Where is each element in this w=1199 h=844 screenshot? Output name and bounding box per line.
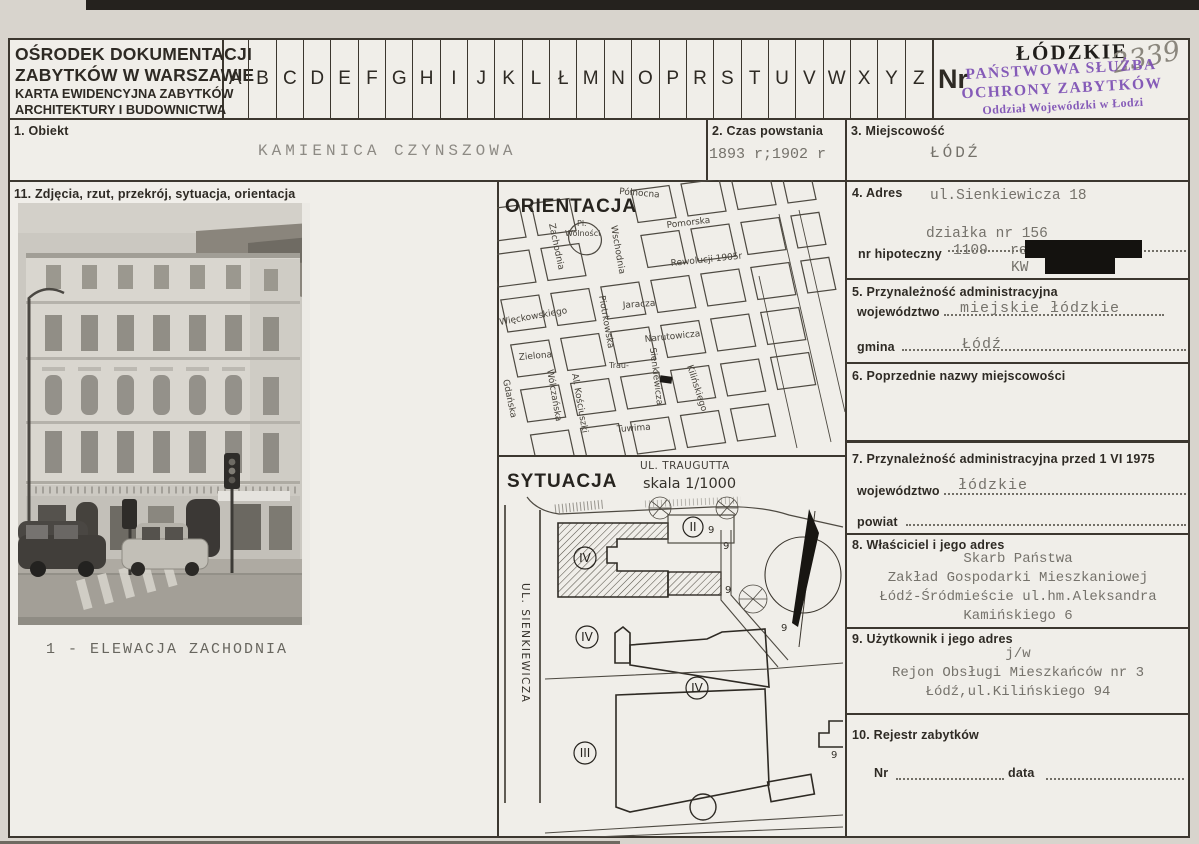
wlasciciel-line: Łódź-Śródmieście ul.hm.Aleksandra <box>848 588 1188 607</box>
alphabet-cell: P <box>659 40 686 118</box>
alphabet-cell: B <box>248 40 275 118</box>
adres-street: ul.Sienkiewicza 18 <box>930 188 1087 204</box>
uzytkownik-line: Rejon Obsługi Mieszkańców nr 3 <box>848 664 1188 683</box>
svg-text:IV: IV <box>579 551 592 565</box>
hipoteczny-value: 1109 <box>953 243 988 259</box>
svg-text:Rewolucji 1905r: Rewolucji 1905r <box>670 251 743 268</box>
divider <box>845 533 1190 535</box>
street-left-label: UL. SIENKIEWICZA <box>519 583 531 703</box>
scan-edge-top <box>86 0 1199 10</box>
field-label-przynaleznosc-1975: 7. Przynależność administracyjna przed 1… <box>852 452 1155 466</box>
divider <box>845 440 1190 443</box>
svg-text:Pl.: Pl. <box>577 219 587 228</box>
svg-text:Zielona: Zielona <box>518 350 552 363</box>
orientation-title: ORIENTACJA <box>505 196 637 217</box>
dotted-line <box>896 778 1004 780</box>
wojewodztwo-1975-value: łódzkie <box>958 477 1028 494</box>
wlasciciel-line: Skarb Państwa <box>848 550 1188 569</box>
institution-header: OŚRODEK DOKUMENTACJIZABYTKÓW W WARSZAWIE… <box>15 44 221 117</box>
alphabet-cell: A <box>222 40 248 118</box>
situation-plan: UL. SIENKIEWICZA SYTUACJA UL. TRAUGUTTA … <box>497 455 845 838</box>
street-top-label: UL. TRAUGUTTA <box>640 460 730 472</box>
alphabet-cell: S <box>713 40 740 118</box>
field-label-adres: 4. Adres <box>852 186 902 200</box>
wlasciciel-line: Kamińskiego 6 <box>848 607 1188 626</box>
redaction-bar <box>1045 258 1115 274</box>
building-photograph <box>18 203 310 625</box>
orientation-map: ORIENTACJA Północna Pomorska Rewolucji 1… <box>497 180 845 455</box>
institution-line: OŚRODEK DOKUMENTACJI <box>15 44 221 65</box>
hipoteczny-label: nr hipoteczny <box>858 247 942 261</box>
rejestr-data-label: data <box>1008 766 1035 780</box>
svg-text:9: 9 <box>831 750 837 761</box>
institution-line: ARCHITEKTURY I BUDOWNICTWA <box>15 102 221 118</box>
alphabet-cell: V <box>795 40 822 118</box>
field-value-miejscowosc: ŁÓDŹ <box>930 144 980 162</box>
wojewodztwo-1975-label: województwo <box>857 484 940 498</box>
field-value-czas: 1893 r;1902 r <box>709 146 826 163</box>
alphabet-cell: N <box>604 40 631 118</box>
dotted-line <box>906 524 1186 526</box>
photo-edge <box>302 203 310 625</box>
redaction-bar <box>1025 240 1142 258</box>
alphabet-cell: I <box>440 40 467 118</box>
alphabet-cell: K <box>494 40 521 118</box>
field-label-poprzednie: 6. Poprzednie nazwy miejscowości <box>852 369 1065 383</box>
alphabet-cell: C <box>276 40 303 118</box>
wojewodztwo-value: miejskie łódzkie <box>960 300 1120 317</box>
dotted-line <box>1046 778 1184 780</box>
divider <box>706 118 708 180</box>
svg-text:Gdańska: Gdańska <box>500 379 518 419</box>
photo-caption: 1 - ELEWACJA ZACHODNIA <box>46 641 288 658</box>
uzytkownik-lines: j/wRejon Obsługi Mieszkańców nr 3Łódź,ul… <box>848 645 1188 702</box>
alphabet-cell: X <box>850 40 877 118</box>
field-label-miejscowosc: 3. Miejscowość <box>851 124 945 138</box>
svg-text:Wolności: Wolności <box>565 228 600 238</box>
gmina-value: Łódź <box>962 336 1002 353</box>
powiat-label: powiat <box>857 515 898 529</box>
svg-text:9: 9 <box>725 585 731 596</box>
field-label-uzytkownik: 9. Użytkownik i jego adres <box>852 632 1013 646</box>
alphabet-cell: O <box>631 40 658 118</box>
subject-building-wing <box>668 572 721 595</box>
svg-text:Narutowicza: Narutowicza <box>644 329 700 345</box>
svg-text:9: 9 <box>723 541 729 552</box>
alphabet-cell: U <box>768 40 795 118</box>
field-value-obiekt: KAMIENICA CZYNSZOWA <box>258 142 516 160</box>
divider <box>845 118 847 838</box>
scale-label: skala 1/1000 <box>643 476 736 492</box>
situation-title: SYTUACJA <box>507 471 617 492</box>
svg-text:Tuwima: Tuwima <box>616 423 652 435</box>
alphabet-cell: M <box>576 40 603 118</box>
svg-text:Wschodnia: Wschodnia <box>608 225 626 275</box>
alphabet-cell: H <box>412 40 439 118</box>
alphabet-cell: E <box>330 40 357 118</box>
alphabet-cell: Y <box>877 40 904 118</box>
alphabet-cell: G <box>385 40 412 118</box>
monument-record-card-scan: OŚRODEK DOKUMENTACJIZABYTKÓW W WARSZAWIE… <box>0 0 1199 844</box>
wlasciciel-lines: Skarb PaństwaZakład Gospodarki Mieszkani… <box>848 550 1188 626</box>
wojewodztwo-label: województwo <box>857 305 940 319</box>
svg-text:9: 9 <box>708 525 714 536</box>
divider <box>8 118 1190 120</box>
svg-text:IV: IV <box>581 630 594 644</box>
svg-text:II: II <box>689 520 696 534</box>
alphabet-index-strip: ABCDEFGHIJKLŁMNOPRSTUVWXYZ <box>222 40 932 118</box>
svg-text:Piotrkowska: Piotrkowska <box>596 295 615 349</box>
dotted-line <box>902 349 1186 351</box>
field-label-obiekt: 1. Obiekt <box>14 124 69 138</box>
alphabet-cell: T <box>741 40 768 118</box>
rejestr-nr-label: Nr <box>874 766 888 780</box>
north-arrow-icon <box>765 509 841 647</box>
divider <box>845 713 1190 715</box>
alphabet-cell: F <box>358 40 385 118</box>
adjacent-building-outlines <box>615 627 843 812</box>
gmina-label: gmina <box>857 340 895 354</box>
alphabet-cell: D <box>303 40 330 118</box>
uzytkownik-line: Łódź,ul.Kilińskiego 94 <box>848 683 1188 702</box>
svg-text:9: 9 <box>781 623 787 634</box>
divider <box>845 278 1190 280</box>
divider <box>845 627 1190 629</box>
shop-sign <box>218 491 290 501</box>
svg-text:IV: IV <box>691 681 704 695</box>
alphabet-cell: R <box>686 40 713 118</box>
yard-paths <box>721 530 788 667</box>
field-label-przynaleznosc: 5. Przynależność administracyjna <box>852 285 1058 299</box>
alphabet-cell: Ł <box>549 40 576 118</box>
wlasciciel-line: Zakład Gospodarki Mieszkaniowej <box>848 569 1188 588</box>
svg-text:III: III <box>580 746 591 760</box>
kw-label: KW <box>1011 260 1028 276</box>
field-label-zdjecia: 11. Zdjęcia, rzut, przekrój, sytuacja, o… <box>14 187 295 201</box>
svg-text:Jaracza: Jaracza <box>622 299 656 311</box>
divider <box>845 362 1190 364</box>
svg-text:Sienkiewicza: Sienkiewicza <box>647 347 664 406</box>
institution-line: KARTA EWIDENCYJNA ZABYTKÓW <box>15 86 221 102</box>
svg-text:Trau-: Trau- <box>608 361 629 370</box>
uzytkownik-line: j/w <box>848 645 1188 664</box>
alphabet-cell: W <box>823 40 850 118</box>
institution-line: ZABYTKÓW W WARSZAWIE <box>15 65 221 86</box>
field-label-czas: 2. Czas powstania <box>712 124 823 138</box>
neighbour-building <box>668 515 734 543</box>
svg-text:Zachodnia: Zachodnia <box>546 223 566 271</box>
svg-text:Kilińskiego: Kilińskiego <box>684 364 709 413</box>
alphabet-cell: J <box>467 40 494 118</box>
field-label-rejestr: 10. Rejestr zabytków <box>852 728 979 742</box>
alphabet-cell: L <box>522 40 549 118</box>
